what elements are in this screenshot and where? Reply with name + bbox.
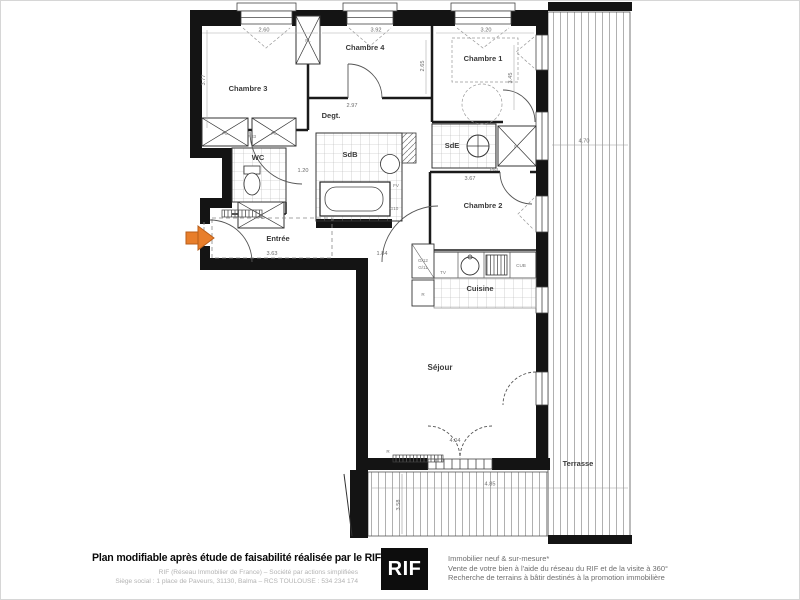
label-degagement: Degt. (322, 111, 341, 120)
dim-entree-width: 3.63 (267, 251, 278, 257)
tag-cub: CUB (516, 263, 526, 268)
tag-placard: PL (514, 144, 520, 149)
tag-g12: G/12 (418, 258, 428, 263)
tag-placard: PL (258, 215, 264, 220)
furniture-circle (462, 84, 502, 124)
dim-ch2-width: 3.67 (465, 176, 476, 182)
tag-placard: PL (222, 131, 228, 136)
dim-ch4-height: 2.65 (420, 61, 426, 72)
dim-bay-width: 4.04 (450, 438, 461, 444)
radiator-icon (222, 210, 262, 217)
dim-terrasse-width: 4.85 (485, 482, 496, 488)
label-cuisine: Cuisine (466, 284, 493, 293)
label-sdb: SdB (343, 150, 359, 159)
dim-couloir-width: 1.20 (298, 168, 309, 174)
duct-shaft (402, 133, 416, 163)
footer-legal-line1: RIF (Réseau Immobilier de France) – Soci… (115, 568, 358, 577)
label-chambre1: Chambre 1 (464, 54, 503, 63)
exterior-walls (190, 10, 550, 470)
label-wc: WC (252, 153, 265, 162)
tag-placard: PL (305, 38, 311, 43)
label-entree: Entrée (266, 234, 289, 243)
tag-placard: PL (271, 131, 277, 136)
kitchen-floor (434, 278, 536, 308)
label-chambre4: Chambre 4 (346, 43, 386, 52)
tag-g10: G10 (390, 206, 399, 211)
tag-door: P83 (248, 134, 257, 139)
dim-passage-width: 1.84 (377, 251, 388, 257)
footer-headline: Plan modifiable après étude de faisabili… (92, 552, 381, 564)
tag-tv: TV (440, 270, 447, 275)
footer-services: Immobilier neuf & sur-mesure* Vente de v… (448, 554, 668, 583)
terrace-bottom-wall (548, 535, 632, 544)
dim-ch1-height: 3.45 (508, 73, 514, 84)
footer-services-line2: Vente de votre bien à l'aide du réseau d… (448, 564, 668, 574)
label-chambre3: Chambre 3 (229, 84, 268, 93)
footer-legal: RIF (Réseau Immobilier de France) – Soci… (115, 568, 358, 586)
sink-icon (461, 257, 479, 275)
dim-ch1-width: 3.20 (481, 28, 492, 34)
dim-terrasse-height: 3.58 (396, 500, 402, 511)
footer-services-line1: Immobilier neuf & sur-mesure* (448, 554, 668, 564)
tag-fv: FV (393, 183, 400, 188)
stove-icon (486, 255, 507, 275)
dim-ch3-width: 2.60 (259, 28, 270, 34)
dim-ch3-height: 3.77 (201, 75, 207, 86)
page: { "plan": { "rooms": { "chambre3": "Cham… (0, 0, 800, 600)
label-sejour: Séjour (428, 363, 453, 372)
label-terrasse: Terrasse (563, 459, 594, 468)
floor-plan: Chambre 3 Chambre 4 Chambre 1 Chambre 2 … (0, 0, 800, 545)
footer-legal-line2: Siège social : 1 place de Paveurs, 31130… (115, 577, 358, 586)
dim-degt-width: 2.97 (347, 103, 358, 109)
tag-g11: G/11 (418, 265, 428, 270)
dim-ch4-width: 3.92 (371, 28, 382, 34)
tag-radiator: R (386, 449, 390, 454)
terrace-top-wall (548, 2, 632, 11)
radiator-icon (393, 455, 443, 462)
fixtures (202, 16, 536, 462)
tag-labels: PL PL PL PL PL R R TV FV G10 CUB G/12 G/… (222, 38, 526, 454)
washbasin-icon (381, 155, 400, 174)
dim-terrasse-length: 4.70 (579, 139, 590, 145)
tag-door: P83 (490, 167, 499, 172)
label-sde: SdE (445, 141, 460, 150)
rif-logo: RIF (381, 548, 428, 590)
label-chambre2: Chambre 2 (464, 201, 503, 210)
footer-services-line3: Recherche de terrains à bâtir destinés à… (448, 573, 668, 583)
